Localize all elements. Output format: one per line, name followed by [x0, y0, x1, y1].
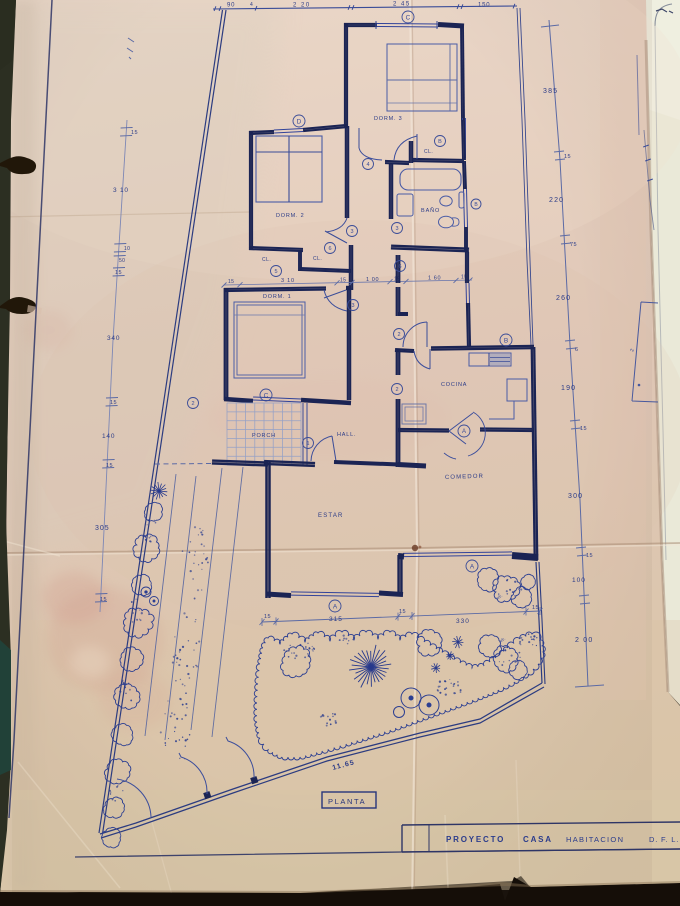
- svg-text:2 00: 2 00: [575, 637, 593, 644]
- svg-text:HALL.: HALL.: [337, 432, 356, 438]
- svg-text:6: 6: [328, 246, 331, 252]
- svg-text:150: 150: [478, 3, 490, 9]
- svg-text:DORM. 3: DORM. 3: [374, 116, 403, 122]
- svg-text:3: 3: [350, 229, 353, 235]
- svg-text:BAÑO: BAÑO: [421, 207, 440, 214]
- svg-text:15: 15: [564, 154, 571, 160]
- svg-text:15: 15: [100, 597, 107, 603]
- svg-text:315: 315: [329, 616, 343, 623]
- svg-text:3: 3: [351, 303, 354, 309]
- svg-text:PORCH: PORCH: [252, 433, 276, 439]
- svg-text:HABITACION: HABITACION: [566, 835, 624, 844]
- svg-text:C: C: [264, 392, 269, 399]
- svg-text:15: 15: [264, 614, 271, 620]
- svg-text:A: A: [462, 429, 466, 435]
- svg-text:CL.: CL.: [313, 256, 322, 262]
- svg-text:CL.: CL.: [424, 149, 433, 155]
- svg-text:10: 10: [124, 246, 130, 252]
- svg-text:PROYECTO: PROYECTO: [446, 835, 505, 844]
- svg-text:15: 15: [532, 605, 539, 611]
- svg-text:A: A: [333, 603, 338, 610]
- svg-text:2: 2: [395, 387, 398, 393]
- svg-text:6: 6: [398, 264, 401, 270]
- svg-text:260: 260: [556, 295, 571, 302]
- svg-text:300: 300: [568, 493, 583, 500]
- svg-text:1: 1: [306, 441, 309, 447]
- svg-text:3 10: 3 10: [113, 187, 129, 194]
- svg-text:1 00: 1 00: [366, 277, 379, 283]
- svg-text:330: 330: [456, 618, 470, 625]
- svg-text:2 45: 2 45: [393, 2, 411, 8]
- svg-text:2: 2: [397, 332, 400, 338]
- svg-text:4: 4: [366, 162, 369, 168]
- svg-text:4: 4: [250, 2, 254, 8]
- svg-text:90: 90: [227, 3, 235, 9]
- svg-text:75: 75: [570, 242, 577, 248]
- svg-text:A: A: [470, 563, 475, 570]
- svg-text:3: 3: [395, 226, 398, 232]
- svg-text:6: 6: [575, 347, 579, 353]
- svg-text:CL.: CL.: [262, 257, 271, 263]
- svg-text:2 20: 2 20: [293, 3, 311, 9]
- svg-text:15: 15: [106, 463, 113, 469]
- svg-text:15: 15: [228, 279, 234, 285]
- svg-text:B: B: [504, 337, 508, 344]
- svg-text:CASA: CASA: [523, 835, 553, 844]
- svg-text:D. F. L. N: D. F. L. N: [649, 835, 680, 844]
- svg-text:5: 5: [274, 269, 277, 275]
- svg-text:190: 190: [561, 385, 576, 392]
- svg-text:50: 50: [119, 258, 125, 264]
- svg-text:3 10: 3 10: [281, 278, 295, 284]
- svg-text:340: 340: [107, 335, 120, 342]
- svg-text:B: B: [438, 139, 442, 145]
- svg-text:DORM. 2: DORM. 2: [276, 213, 305, 219]
- svg-text:15: 15: [580, 426, 587, 432]
- svg-text:140: 140: [102, 433, 115, 440]
- svg-text:100: 100: [572, 577, 586, 584]
- svg-text:220: 220: [549, 197, 564, 204]
- svg-text:2: 2: [191, 401, 194, 407]
- svg-text:15: 15: [115, 270, 122, 276]
- svg-text:ESTAR: ESTAR: [318, 513, 344, 519]
- svg-text:15: 15: [110, 400, 117, 406]
- svg-text:385: 385: [543, 88, 558, 95]
- svg-text:COCINA: COCINA: [441, 382, 467, 388]
- svg-text:15: 15: [586, 553, 593, 559]
- svg-text:15: 15: [399, 609, 406, 615]
- svg-text:1 60: 1 60: [428, 276, 441, 282]
- svg-text:15: 15: [131, 130, 138, 136]
- svg-text:15: 15: [340, 278, 346, 284]
- svg-text:PLANTA: PLANTA: [328, 797, 366, 806]
- svg-text:D: D: [297, 118, 302, 125]
- svg-text:C: C: [406, 14, 411, 21]
- svg-text:305: 305: [95, 525, 110, 532]
- svg-text:DORM. 1: DORM. 1: [263, 294, 292, 300]
